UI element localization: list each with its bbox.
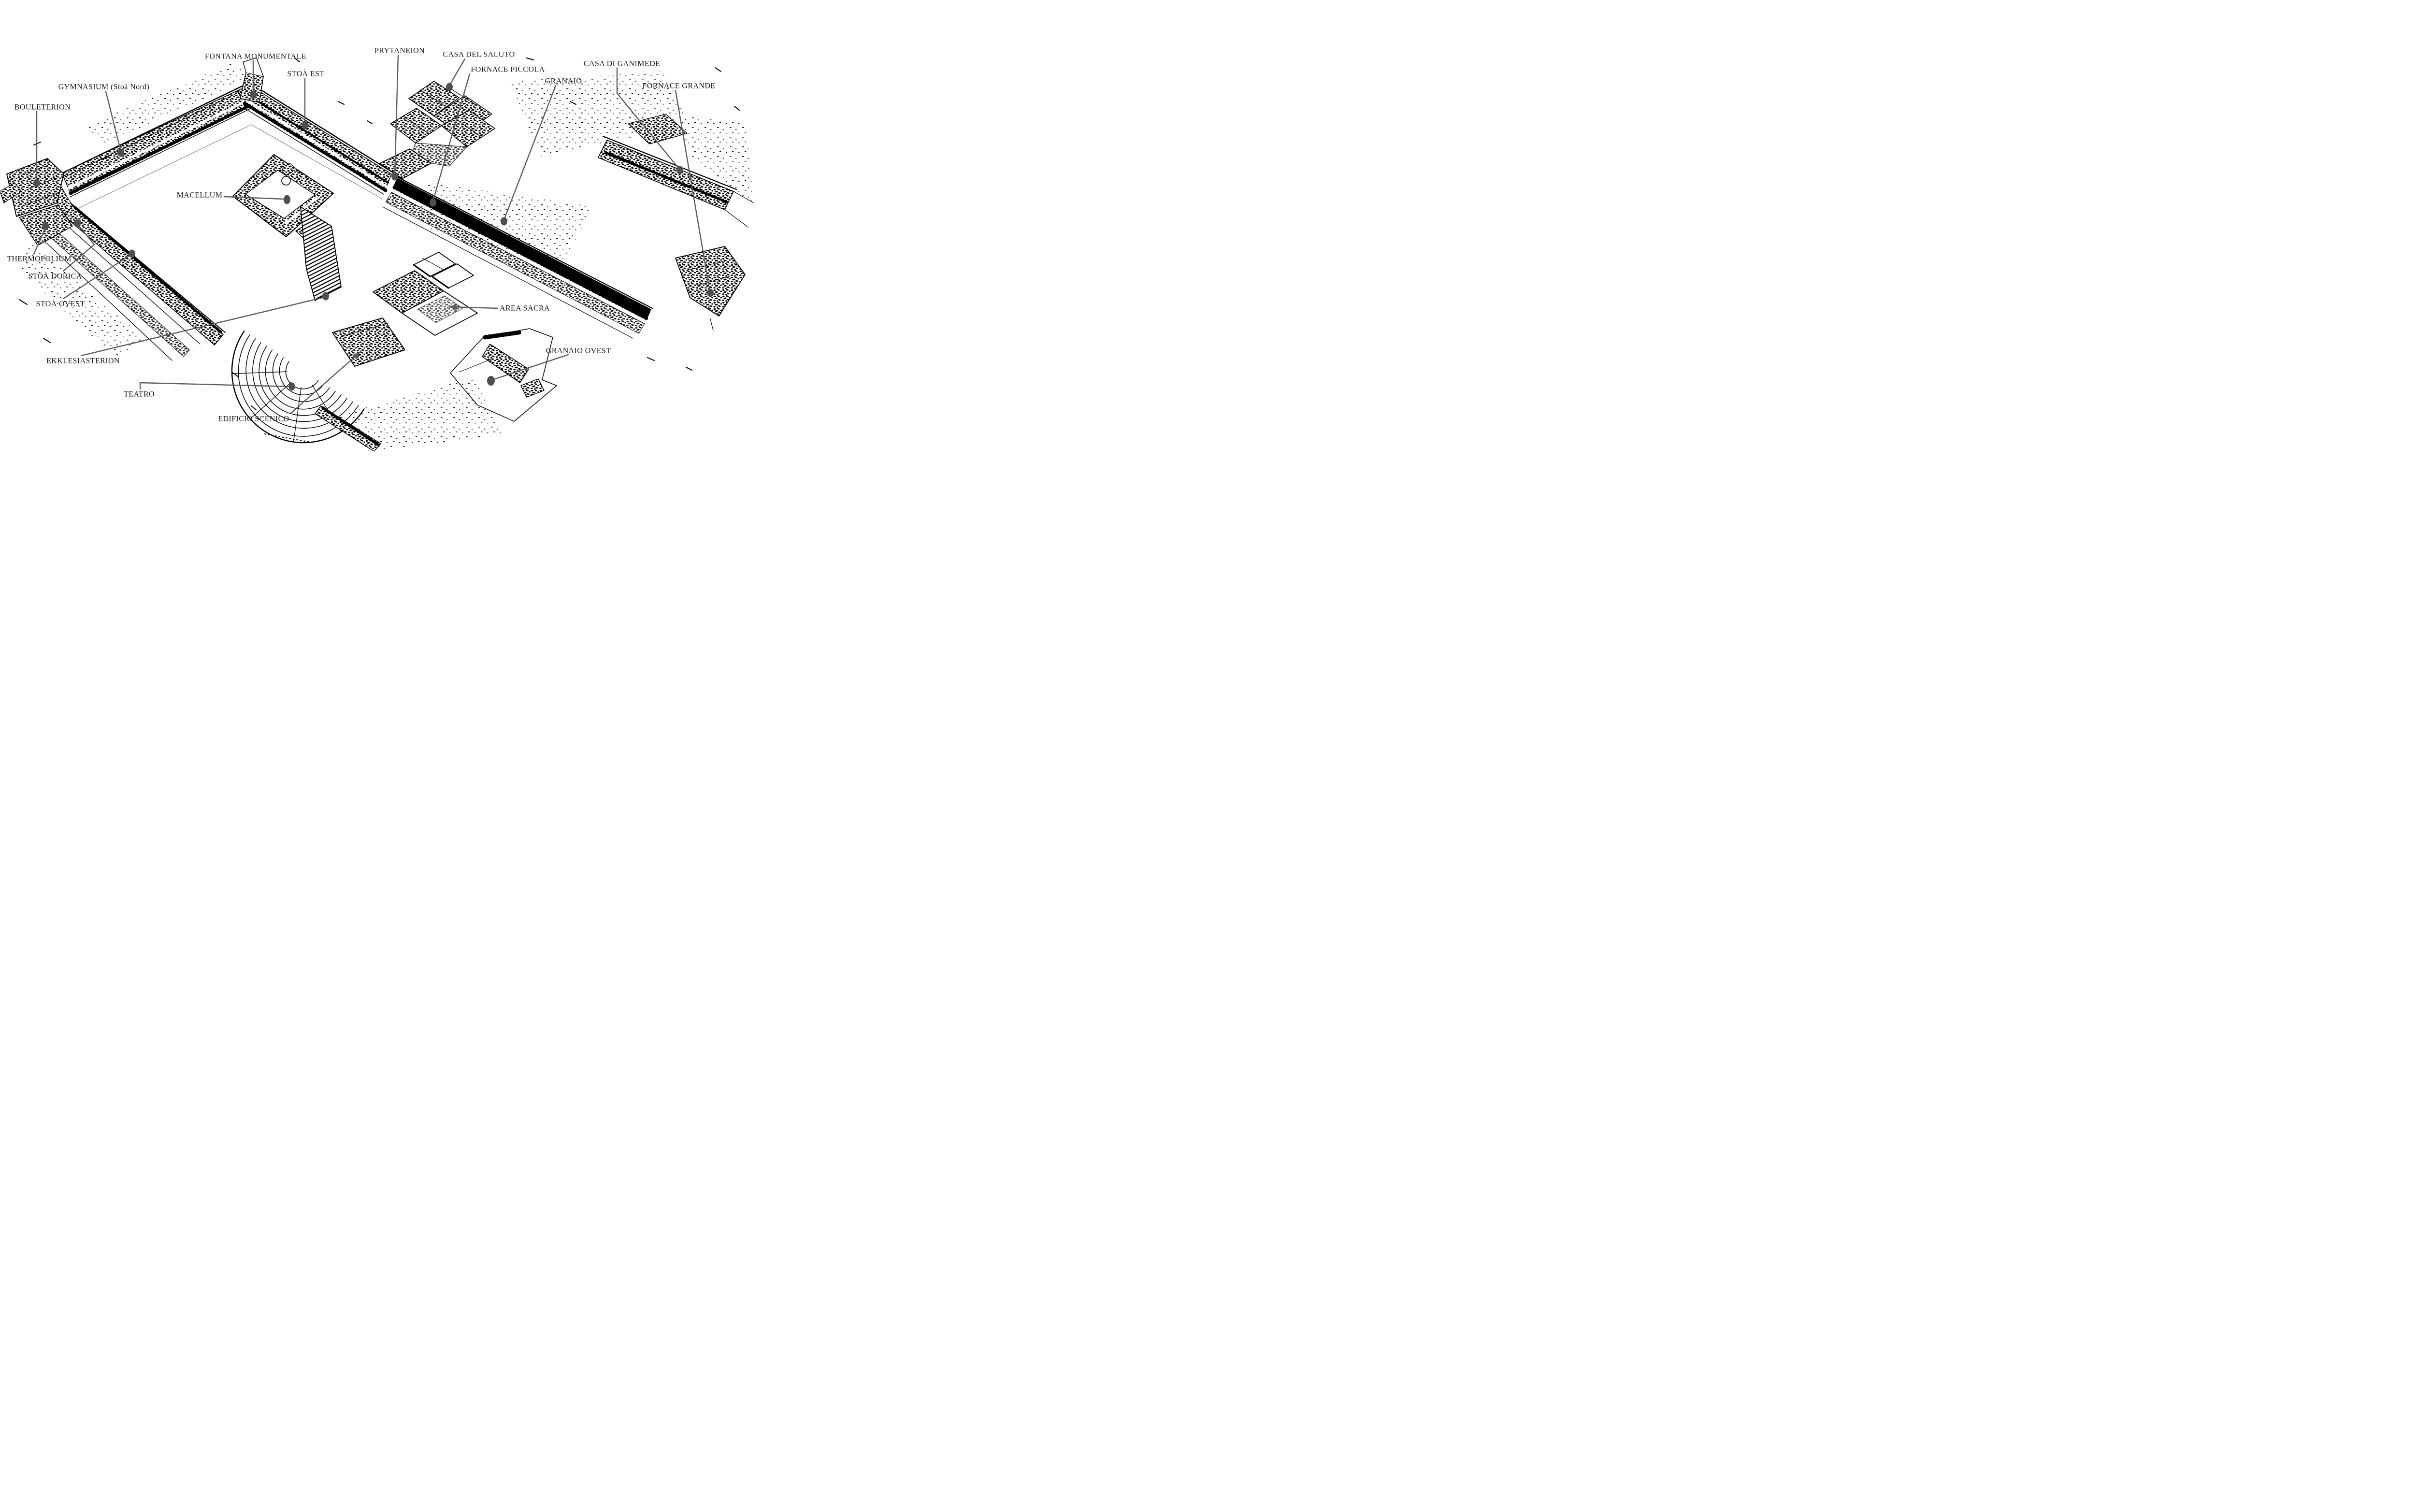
marker-dot-teatro (289, 383, 295, 391)
annotation-label-casa-di-ganimede: CASA DI GANIMEDE (584, 60, 660, 68)
leader-line-edificio-scenico (290, 352, 360, 414)
annotation-label-granaio-ovest: GRANAIO OVEST (546, 347, 611, 355)
marker-dot-granaio-ovest (487, 376, 495, 386)
marker-dot-bouleterion (33, 179, 40, 187)
leader-line-casa-del-saluto (449, 59, 465, 86)
marker-dot-casa-del-saluto (446, 83, 453, 91)
marker-dot-granaio (501, 217, 507, 226)
marker-dot-fornace-piccola (430, 199, 436, 207)
annotation-label-gymnasium: GYMNASIUM (Stoà Nord) (58, 83, 150, 91)
marker-dot-fornace-grande (707, 289, 714, 297)
annotation-label-thermopolium: THERMOPOLIUM (7, 255, 72, 263)
site-drawing (0, 58, 754, 451)
drawing-fornace-grande (676, 246, 745, 331)
annotation-label-bouleterion: BOULETERION (14, 103, 71, 112)
annotation-label-casa-del-saluto: CASA DEL SALUTO (443, 51, 515, 59)
marker-dot-thermopolium (42, 222, 49, 230)
marker-dot-stoa-ovest (129, 250, 135, 258)
marker-dot-prytaneion (391, 173, 398, 181)
marker-dot-stoa-dorica (74, 219, 81, 228)
annotation-label-fornace-piccola: FORNACE PICCOLA (471, 66, 545, 74)
annotation-teatro: TEATRO (124, 383, 295, 399)
annotation-label-granaio: GRANAIO (545, 77, 582, 86)
marker-dot-casa-di-ganimede (676, 166, 683, 174)
theater-stair-line (250, 382, 291, 419)
marker-dot-fontana-monumentale (250, 91, 257, 99)
annotation-label-ekklesiasterion: EKKLESIASTERION (46, 357, 120, 365)
annotation-label-fornace-grande: FORNACE GRANDE (643, 82, 716, 90)
annotation-label-prytaneion: PRYTANEION (374, 47, 425, 55)
annotation-label-edificio-scenico: EDIFICIO SCENICO (218, 415, 289, 423)
annotation-label-fontana-monumentale: FONTANA MONUMENTALE (205, 53, 306, 61)
annotation-label-macellum: MACELLUM (177, 191, 223, 200)
annotation-label-teatro: TEATRO (124, 390, 155, 399)
annotation-label-area-sacra: AREA SACRA (500, 304, 550, 313)
site-map-figure: BOULETERIONGYMNASIUM (Stoà Nord)FONTANA … (0, 0, 758, 451)
annotation-label-stoa-ovest: STOÀ OVEST (36, 299, 85, 308)
marker-dot-gymnasium (117, 149, 124, 157)
marker-dot-ekklesiasterion (322, 292, 329, 301)
marker-dot-stoa-est (302, 121, 308, 130)
annotation-label-stoa-est: STOÀ EST (287, 69, 324, 78)
drawing-ekklesiasterion-steps (301, 207, 341, 301)
theater-stair-line (232, 372, 287, 374)
theater-seat-arc (266, 350, 336, 409)
annotation-label-stoa-dorica: STOÀ DORICA (28, 272, 82, 281)
marker-dot-macellum (284, 195, 290, 204)
